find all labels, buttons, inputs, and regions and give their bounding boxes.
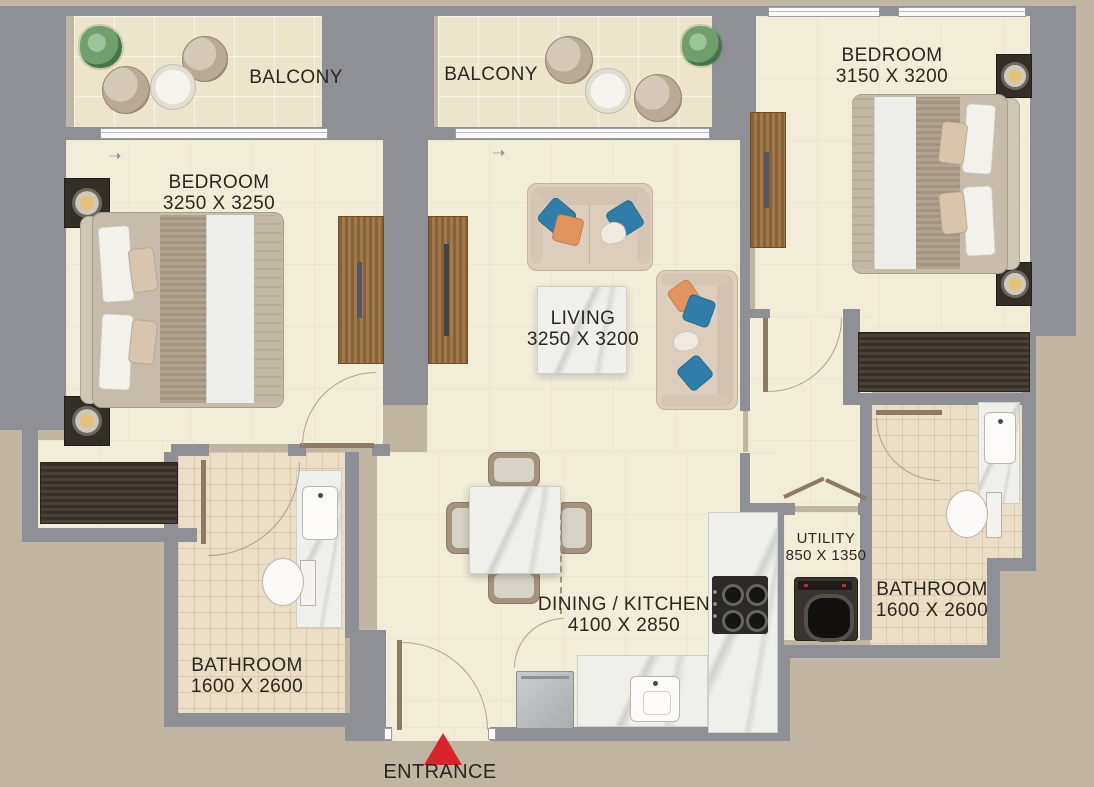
bedroom-2-closet [858,332,1030,392]
stove-burner [746,584,768,606]
washer-light [804,584,808,587]
room-name: BALCONY [391,64,591,85]
wall-right-band [1030,6,1076,336]
bedroom-2-window-left [768,7,880,17]
wall-left-band [0,6,66,430]
room-dims: 3250 X 3250 [119,193,319,214]
bedroom-1-bed [80,212,282,406]
bed-pillow [962,103,997,175]
bathroom-1-sink [302,486,338,540]
room-dims: 1600 X 2600 [832,600,1032,621]
wall-hall-bottom-right [858,503,872,515]
bed-cushion [938,121,969,166]
room-name: BEDROOM [792,45,992,66]
toilet-tank [986,492,1002,538]
sofa-armrest [637,192,650,264]
sofa-armrest [661,394,729,407]
room-label-bedroom-1: BEDROOM 3250 X 3250 [119,172,319,215]
wall-entrance-corridor-left [350,630,386,740]
wardrobe-handle [764,152,769,208]
sofa-pillow-orange [551,213,585,247]
balcony-1-sliding-window [100,128,328,139]
chair-seat [562,508,586,548]
room-dims: 850 X 1350 [726,548,926,565]
kitchen-sink [630,676,680,722]
stove-burner [722,610,744,632]
balcony-entry-arrow-icon: ➝ [108,149,121,165]
lamp-icon [1001,270,1029,298]
room-dims: 3150 X 3200 [792,66,992,87]
room-dims: 4100 X 2850 [524,615,724,636]
room-label-bathroom-1: BATHROOM 1600 X 2600 [147,655,347,698]
room-label-bathroom-2: BATHROOM 1600 X 2600 [832,579,1032,622]
bed-foot [254,215,282,403]
room-name: BALCONY [196,67,396,88]
plant-icon [80,26,122,68]
balcony-2-table [585,68,631,114]
wall-bathroom-1-top-left [171,444,209,456]
room-dims: 1600 X 2600 [147,676,347,697]
room-name: BATHROOM [147,655,347,676]
dining-table [469,486,561,574]
room-name: BEDROOM [119,172,319,193]
room-dims: 3250 X 3200 [483,329,683,350]
dining-chair-top [488,452,540,488]
room-label-dining-kitchen: DINING / KITCHEN 4100 X 2850 [524,594,724,637]
bed-duvet [206,215,256,403]
bed-blanket [160,215,206,403]
entrance-jamb-right [488,728,496,740]
faucet-icon [653,681,658,686]
wardrobe-handle [357,262,362,318]
wall-bathroom-1-right [345,452,359,638]
bed-duvet [874,97,918,269]
living-sofa-1 [527,183,653,271]
lamp-icon [1001,62,1029,90]
wall-bedroom-2-bottom-stub [748,309,770,318]
wall-living-right-upper [740,133,750,411]
bathroom-2-door-leaf [876,410,942,415]
bedroom-2-window-right [898,7,1026,17]
lamp-icon [72,406,102,436]
room-label-living: LIVING 3250 X 3200 [483,308,683,351]
sink-basin [643,691,671,715]
fridge-icon [516,671,574,729]
chair-seat [494,458,534,482]
balcony-2-sliding-window [455,128,710,139]
entrance-text: ENTRANCE [340,761,540,783]
balcony-1-chair-1 [102,66,150,114]
room-name: BATHROOM [832,579,1032,600]
bed-pillow [962,185,996,256]
room-label-balcony-2: BALCONY [391,64,591,85]
bathroom-2-sink [984,412,1016,464]
bathroom-1-door-leaf [201,460,206,544]
plant-icon [682,26,722,66]
bed-cushion [128,319,158,365]
bedroom-1-closet [40,462,178,524]
room-label-balcony-1: BALCONY [196,67,396,88]
room-label-utility: UTILITY 850 X 1350 [726,531,926,565]
bedroom-2-bed [852,94,1018,272]
sofa-cushion-seam [589,204,590,264]
entrance-jamb-left [384,728,392,740]
wall-bathroom-1-bottom [164,713,356,727]
stove-burner [746,610,768,632]
room-name: LIVING [483,308,683,329]
toilet-icon [262,558,304,606]
sofa-armrest [530,192,543,264]
stove-burner [722,584,744,606]
bed-cushion [938,191,968,235]
bed-cushion [127,247,158,294]
floor-plan: ➝ ➝ BALCONY BALCONY BEDROOM 3250 X 3250 … [0,0,1094,787]
wall-bottom-right-band [768,645,1000,658]
balcony-2-chair-2 [634,74,682,122]
room-label-bedroom-2: BEDROOM 3150 X 3200 [792,45,992,88]
toilet-icon [946,490,988,538]
sofa-backrest [717,275,733,405]
sofa-pillow-blue [675,353,714,392]
wall-balcony-1-top [64,6,332,16]
sofa-armrest [661,273,729,286]
wall-balcony-2-top [428,6,720,16]
wall-bedroom-1-living-divider [383,133,428,405]
balcony-1-table [150,64,196,110]
faucet-icon [998,419,1003,424]
room-name: UTILITY [726,531,926,548]
bed-foot [852,97,874,269]
faucet-icon [318,493,323,498]
room-name: DINING / KITCHEN [524,594,724,615]
entrance-label: ENTRANCE [340,761,540,783]
tv-icon [444,244,449,336]
fridge-handle [521,676,569,679]
wall-nook-left [22,415,38,540]
balcony-entry-arrow-icon: ➝ [492,146,505,162]
